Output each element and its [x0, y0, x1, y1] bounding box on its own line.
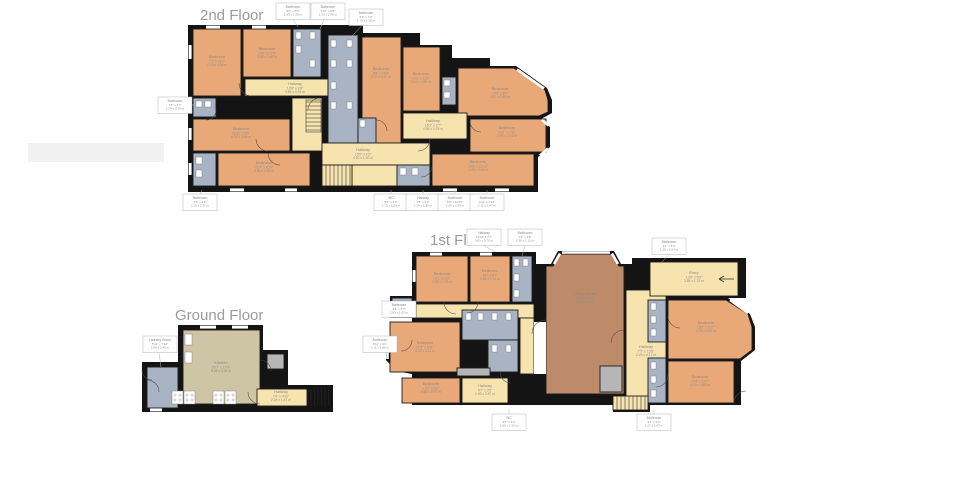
dimension-label-bathroom: Bathroom6'9" x 10'10"2.06 x 3.30 m — [438, 190, 472, 211]
hallway-room — [322, 143, 430, 165]
room-label-bedroom: Bedroom21'4" x 8'10"6.50 x 2.69 m — [254, 160, 274, 173]
dimension-label-wc: WC5'5" x 4'4"1.65 x 1.32 m — [492, 409, 526, 431]
room-label-bedroom: Bedroom13'1" x 7'11"3.99 x 2.41 m — [497, 125, 517, 138]
room-label-bedroom: Bedroom9'9" x 16'9"2.97 x 5.11 m — [371, 66, 391, 79]
dimension-label-hallway: Hallway4'5" x 4'4"1.35 x 1.32 m — [406, 190, 440, 211]
watermark — [28, 143, 164, 162]
dimension-label-text: Bathroom6'9" x 10'10"2.06 x 3.30 m — [446, 196, 465, 208]
dimension-label-text: Bathroom4'11" x 6'9"1.50 x 2.06 m — [319, 5, 338, 17]
floor-first: 1st Floor — [363, 229, 755, 431]
room-label-bedroom: Bedroom7'1" x 14'1"2.16 x 4.29 m — [207, 54, 227, 67]
room-label-bedroom: Bedroom15'0" x 8'1"4.57 x 2.46 m — [490, 86, 510, 99]
closet — [600, 366, 622, 392]
dimension-label-bathroom: Bathroom4'2" x 6'4"1.27 x 1.93 m — [637, 409, 671, 431]
floor-second: 2nd Floor — [158, 3, 552, 211]
dimension-label-wc: WC5'8" x 4'2"1.72 x 1.26 m — [374, 190, 408, 211]
room-label-bedroom: Bedroom12'1" x 9'9"3.68 x 2.97 m — [421, 381, 441, 394]
dimension-label-bathroom: Bathroom6'11" x 4'10"2.11 x 1.47 m — [470, 190, 504, 211]
room-label-bedroom: Bedroom11'1" x 7'9"3.38 x 2.36 m — [432, 271, 452, 284]
closet — [457, 368, 490, 376]
closet — [267, 354, 284, 369]
floor-ground: Ground Floor — [142, 307, 333, 412]
hallway-room — [520, 318, 534, 374]
dimension-label-text: Laundry Room5'11" x 7'10"1.80 x 2.40 m — [149, 338, 171, 350]
room-label-bedroom: Bedroom17'2" x 6'11"5.23 x 2.11 m — [415, 340, 435, 353]
void-shaft — [534, 322, 546, 374]
room-label-bedroom: Bedroom10'8" x 11'5"3.25 x 3.48 m — [257, 46, 277, 59]
dimension-label-bathroom: Bathroom6'11" x 6'2"2.11 x 1.88 m — [363, 336, 402, 353]
floorplan-svg: 2nd Floor — [0, 0, 980, 482]
dimension-label-bathroom: Bathroom7'4" x 2'7"2.24 x 0.79 m — [158, 97, 195, 114]
room-label-bedroom: Bedroom15'8" x 11'10"4.78 x 3.61 m — [468, 159, 489, 172]
washer-icon — [213, 391, 224, 404]
bathroom-room — [648, 358, 666, 403]
dimension-label-text: Bathroom6'11" x 4'10"2.11 x 1.47 m — [478, 196, 496, 208]
dimension-label-bathroom: Bathroom7'9" x 3'8"2.36 x 1.12 m — [508, 229, 542, 256]
dimension-label-bathroom: Bathroom7'6" x 4'6"2.29 x 1.37 m — [183, 190, 217, 211]
hallway-room — [352, 165, 397, 186]
dimension-label-bathroom: Bathroom6'0" x 5'6"1.83 x 1.68 m — [276, 3, 310, 27]
floorplan-sheet: 2nd Floor — [0, 0, 980, 482]
room-label-bedroom: Bedroom15'8" x 10'7"4.78 x 3.23 m — [696, 320, 716, 333]
washer-icon — [184, 391, 195, 404]
room-label-bedroom: Bedroom13'9" x 11'7"4.19 x 3.53 m — [690, 374, 710, 387]
washer-icon — [225, 391, 236, 404]
floor-title-second: 2nd Floor — [200, 7, 263, 24]
stair-landing — [613, 396, 648, 410]
dimension-label-text: Bathroom6'11" x 6'2"2.11 x 1.88 m — [371, 338, 389, 350]
bathroom-room — [648, 300, 666, 342]
stair-landing — [322, 165, 352, 186]
washer-icon — [172, 391, 183, 404]
room-label-living-room: Living Room16'7" x 18'9"5.05 x 5.72 m — [574, 291, 597, 304]
room-label-bedroom: Bedroom10'2" x 15'9"3.10 x 4.80 m — [411, 71, 431, 84]
dimension-label-bathroom: Bathroom9'8" x 5'4"2.95 x 1.63 m — [382, 301, 416, 318]
room-label-bedroom: Bedroom8'8" x 6'7"2.64 x 2.01 m — [480, 268, 500, 281]
floor-title-ground: Ground Floor — [175, 307, 263, 324]
room-label-bedroom: Bedroom22'11" x 8'6"6.99 x 2.59 m — [231, 126, 251, 139]
